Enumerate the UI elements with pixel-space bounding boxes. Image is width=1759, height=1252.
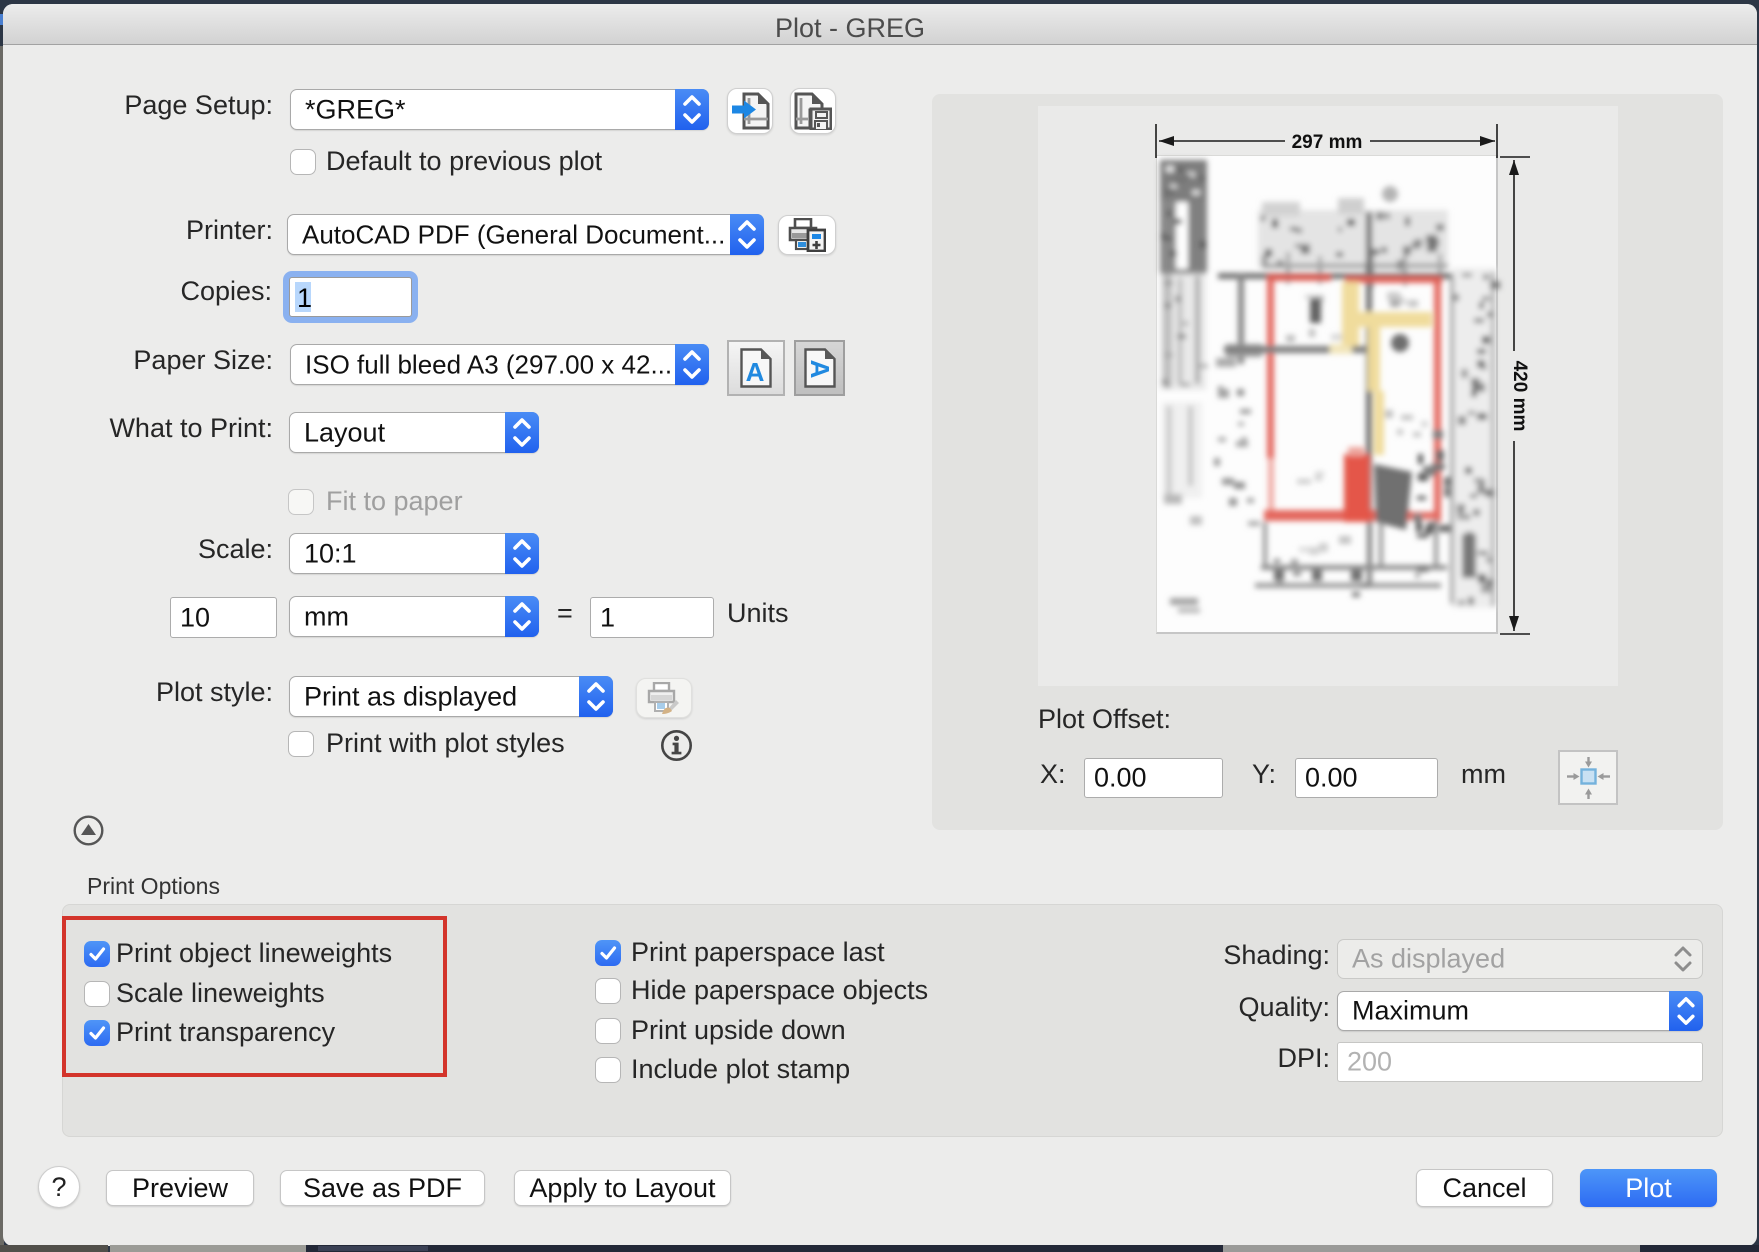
svg-text:297 mm: 297 mm — [1292, 132, 1363, 153]
svg-text:A: A — [746, 357, 765, 387]
svg-text:A: A — [805, 360, 835, 379]
svg-text:420 mm: 420 mm — [1509, 361, 1530, 432]
